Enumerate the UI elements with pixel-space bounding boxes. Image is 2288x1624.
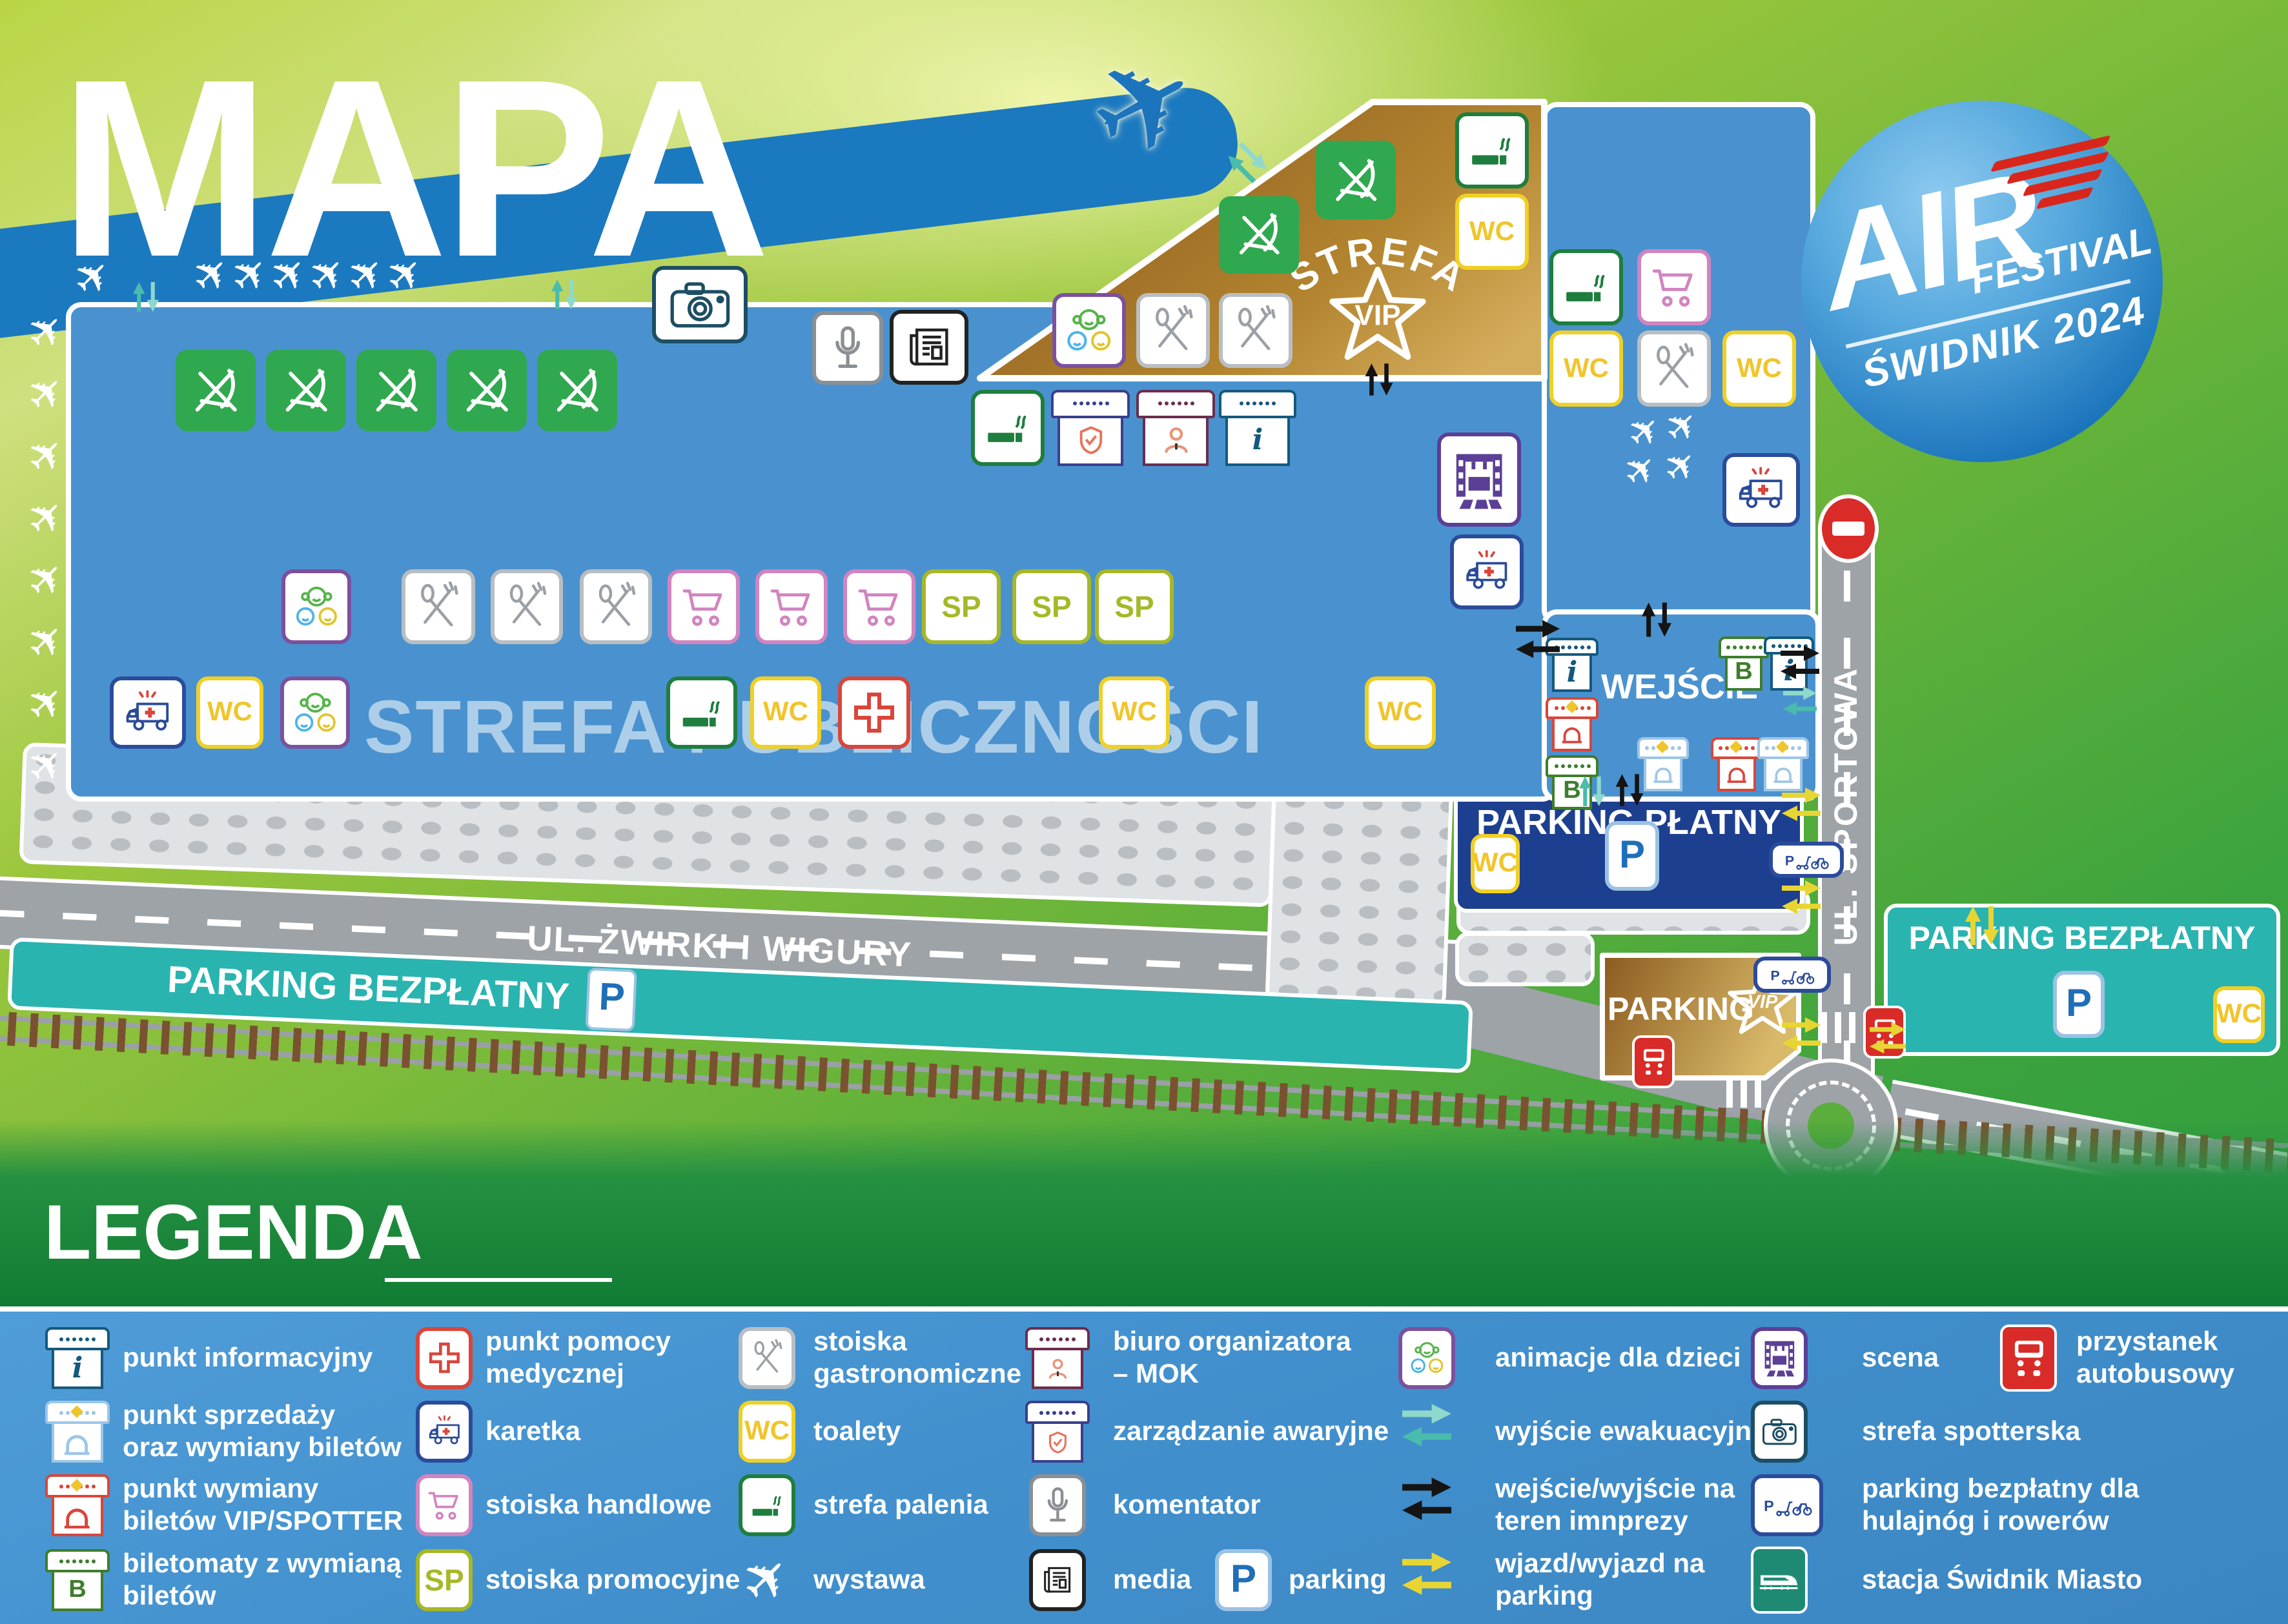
legend-item-icon [416,1474,473,1536]
legend-item-icon [1029,1327,1086,1389]
gastro-icon [1136,293,1210,368]
legend-item-icon: i [49,1327,106,1389]
picon-icon: P [1605,821,1659,891]
legend-item-label: stacja Świdnik Miasto [1862,1564,2142,1596]
festival-logo: AIR FESTIVAL ŚWIDNIK 2024 [1801,101,2163,462]
bus-icon [1632,1038,1675,1086]
cart-icon [843,569,915,644]
legend-item-label: stoiska promocyjne [485,1564,740,1596]
gastro-icon [739,1327,795,1389]
kids-icon [1052,293,1126,368]
kids-icon [281,569,351,644]
legend-item-label: stoiskagastronomiczne [813,1326,1021,1390]
legend-item-label: scena [1862,1342,1939,1374]
parking-lot-blocks [1455,932,1595,986]
gastro-icon [1219,293,1292,368]
svg-text:P: P [1771,968,1780,984]
legend-item-label: stoiska handlowe [485,1489,711,1521]
yellow-arrows-icon [1774,1015,1828,1053]
legend-item-label: strefa spotterska [1862,1416,2081,1448]
legend-item-icon [1029,1549,1086,1611]
booth-b-icon: B [49,1549,106,1611]
parking-p-icon: P [586,968,638,1031]
booth-shield-icon [1029,1401,1086,1463]
camera-icon [652,266,748,343]
booth-i-icon: i [1223,390,1292,466]
svg-text:VIP: VIP [1354,300,1400,332]
legend-item-label: toalety [813,1416,901,1448]
legend-item-label: punkt pomocymedycznej [485,1326,671,1390]
picon-icon: P [2053,971,2105,1038]
festival-map: ✈ MAPA UL. ŻWIRKI I WIGURY UL. SPORTOWA … [0,0,2288,1624]
teal-arrows-icon [1774,684,1826,718]
legend-item-label: przystanekautobusowy [2076,1326,2234,1390]
legend-item-label: punkt wymianybiletów VIP/SPOTTER [123,1473,403,1538]
legend-item-label: animacje dla dzieci [1495,1342,1741,1374]
legend-item-icon: ✈ [739,1549,795,1611]
cart-icon [755,569,828,644]
black-arrows-icon [1599,772,1660,808]
legend-item-label: media [1113,1564,1191,1596]
yellow-arrows-icon [1951,904,2013,948]
legend-item-icon [2000,1327,2057,1389]
plane-icon: ✈ [739,1549,795,1611]
legend-item-icon [416,1401,473,1463]
legend-item-icon [416,1327,473,1389]
amb-icon [416,1401,473,1463]
legend-item-icon: P [1215,1549,1272,1611]
smoke-icon [666,676,737,749]
legend-item-label: komentator [1113,1489,1261,1521]
legend-item-icon: WC [739,1401,795,1463]
wc-icon: WC [1365,676,1436,749]
amb-icon [1722,453,1800,527]
news-icon [1029,1549,1086,1611]
legend-item-label: wjazd/wyjazd naparking [1495,1548,1704,1612]
legend-item-icon [1398,1327,1455,1389]
legend-item-icon [49,1474,106,1536]
legend-item-label: strefa palenia [813,1489,988,1521]
sunbed-icon [1316,141,1396,219]
amb-icon [1450,534,1524,609]
news-icon [890,310,968,385]
camera-icon [1751,1401,1808,1463]
arrow-teal-icon [1398,1401,1455,1450]
legend-item-icon [1398,1474,1455,1536]
smoke-icon [1455,112,1529,188]
wc-icon: WC [1722,330,1796,407]
sunbed-icon [1219,196,1299,274]
legend-item-icon [739,1474,795,1536]
street-label-sportowa: UL. SPORTOWA [1828,665,1865,945]
svg-text:P: P [1764,1498,1774,1515]
cross-icon [416,1327,473,1389]
kids-icon [1398,1327,1455,1389]
legend-item-label: biletomaty z wymianąbiletów [123,1548,402,1612]
legend-item-icon [1751,1549,1808,1611]
legend-item-icon [1398,1549,1455,1611]
wc-icon: WC [2213,986,2265,1043]
smoke-icon [1549,249,1623,325]
mic-icon [1029,1474,1086,1536]
yellow-arrows-icon [1774,878,1828,917]
sp-icon: SP [922,569,1001,644]
wc-icon: WC [739,1401,795,1463]
sp-icon: SP [1012,569,1091,644]
wc-icon: WC [196,676,263,749]
stage-icon [1751,1327,1808,1389]
train-icon [1751,1549,1808,1611]
legend-item-icon: SP [416,1549,473,1611]
cart-icon [1637,249,1711,325]
booth-b-icon: B [1722,636,1765,691]
booth-i-icon: i [49,1327,106,1389]
stage-icon [1437,432,1521,527]
booth-lb-icon [49,1401,106,1463]
cart-icon [416,1474,473,1536]
legend-item-label: karetka [485,1416,580,1448]
legend-item-icon [1029,1401,1086,1463]
legend-title: LEGENDA [44,1188,423,1277]
arrow-black-icon [1398,1474,1455,1523]
black-arrows-icon [1351,361,1407,398]
wc-icon: WC [1471,834,1520,893]
scooter-icon: P [1751,1474,1823,1536]
legend-item-icon [1398,1401,1455,1463]
gastro-icon [491,569,563,644]
legend-item-icon [1751,1327,1808,1389]
sunbed-icon [447,350,527,431]
black-arrows-icon [1774,643,1826,682]
wc-icon: WC [1549,330,1623,407]
wc-icon: WC [750,676,821,749]
free-parking-left-label: PARKING BEZPŁATNY [167,959,570,1019]
sp-icon: SP [416,1549,473,1611]
teal-arrows-icon [536,278,593,311]
booth-shield-icon [1055,390,1126,466]
gastro-icon [580,569,652,644]
legend-item-label: zarządzanie awaryjne [1113,1416,1389,1448]
legend-item-icon: B [49,1549,106,1611]
legend-title-underline [385,1278,612,1282]
cross-icon [838,676,910,749]
noentry-icon [1818,498,1879,559]
legend-item-icon [1751,1401,1808,1463]
legend-item-label: wyjście ewakuacyjne [1495,1416,1766,1448]
legend-item-icon [49,1401,106,1463]
wc-icon: WC [1455,194,1529,270]
booth-person-icon [1140,390,1211,466]
booth-red-icon [1715,737,1759,791]
smoke-icon [739,1474,795,1536]
cart-icon [668,569,740,644]
sunbed-icon [266,350,346,431]
vip-zone-star: VIP [1327,265,1428,365]
picon-icon: P [1215,1549,1272,1611]
gastro-icon [402,569,475,644]
wc-icon: WC [1099,676,1170,749]
sunbed-icon [537,350,617,431]
sunbed-icon [356,350,436,431]
yellow-arrows-icon [1864,1020,1911,1056]
gastro-icon [1637,330,1711,407]
legend-item-label: wystawa [813,1564,925,1596]
scooter-icon: P [1769,842,1844,878]
black-arrows-icon [1511,617,1565,661]
booth-person-icon [1029,1327,1086,1389]
booth-red-icon [49,1474,106,1536]
legend-item-icon [739,1327,795,1389]
teal-arrows-icon [117,280,174,314]
scooter-icon: P [1753,957,1831,993]
legend-item-icon: P [1751,1474,1808,1536]
legend-item-label: biuro organizatora– MOK [1113,1326,1351,1390]
legend-item-label: parking bezpłatny dlahulajnóg i rowerów [1862,1473,2139,1538]
legend-item-label: punkt informacyjny [123,1342,373,1374]
black-arrows-icon [1623,600,1690,639]
sunbed-icon [176,350,256,431]
kids-icon [280,676,350,749]
yellow-arrows-icon [1774,785,1828,824]
booth-lb-icon [1761,737,1805,791]
smoke-icon [971,390,1045,466]
svg-text:VIP: VIP [1748,992,1778,1013]
legend-item-label: wejście/wyjście nateren imnprezy [1495,1473,1735,1538]
sp-icon: SP [1095,569,1174,644]
legend-item-label: punkt sprzedażyoraz wymiany biletów [123,1399,402,1464]
mic-icon [812,311,883,385]
amb-icon [110,676,186,749]
arrow-yellow-icon [1398,1549,1455,1598]
legend-item-icon [1029,1474,1086,1536]
svg-text:P: P [1785,853,1794,869]
booth-red-icon [1549,697,1595,751]
bus-icon [2000,1327,2057,1389]
legend-item-label: parking [1289,1564,1387,1596]
